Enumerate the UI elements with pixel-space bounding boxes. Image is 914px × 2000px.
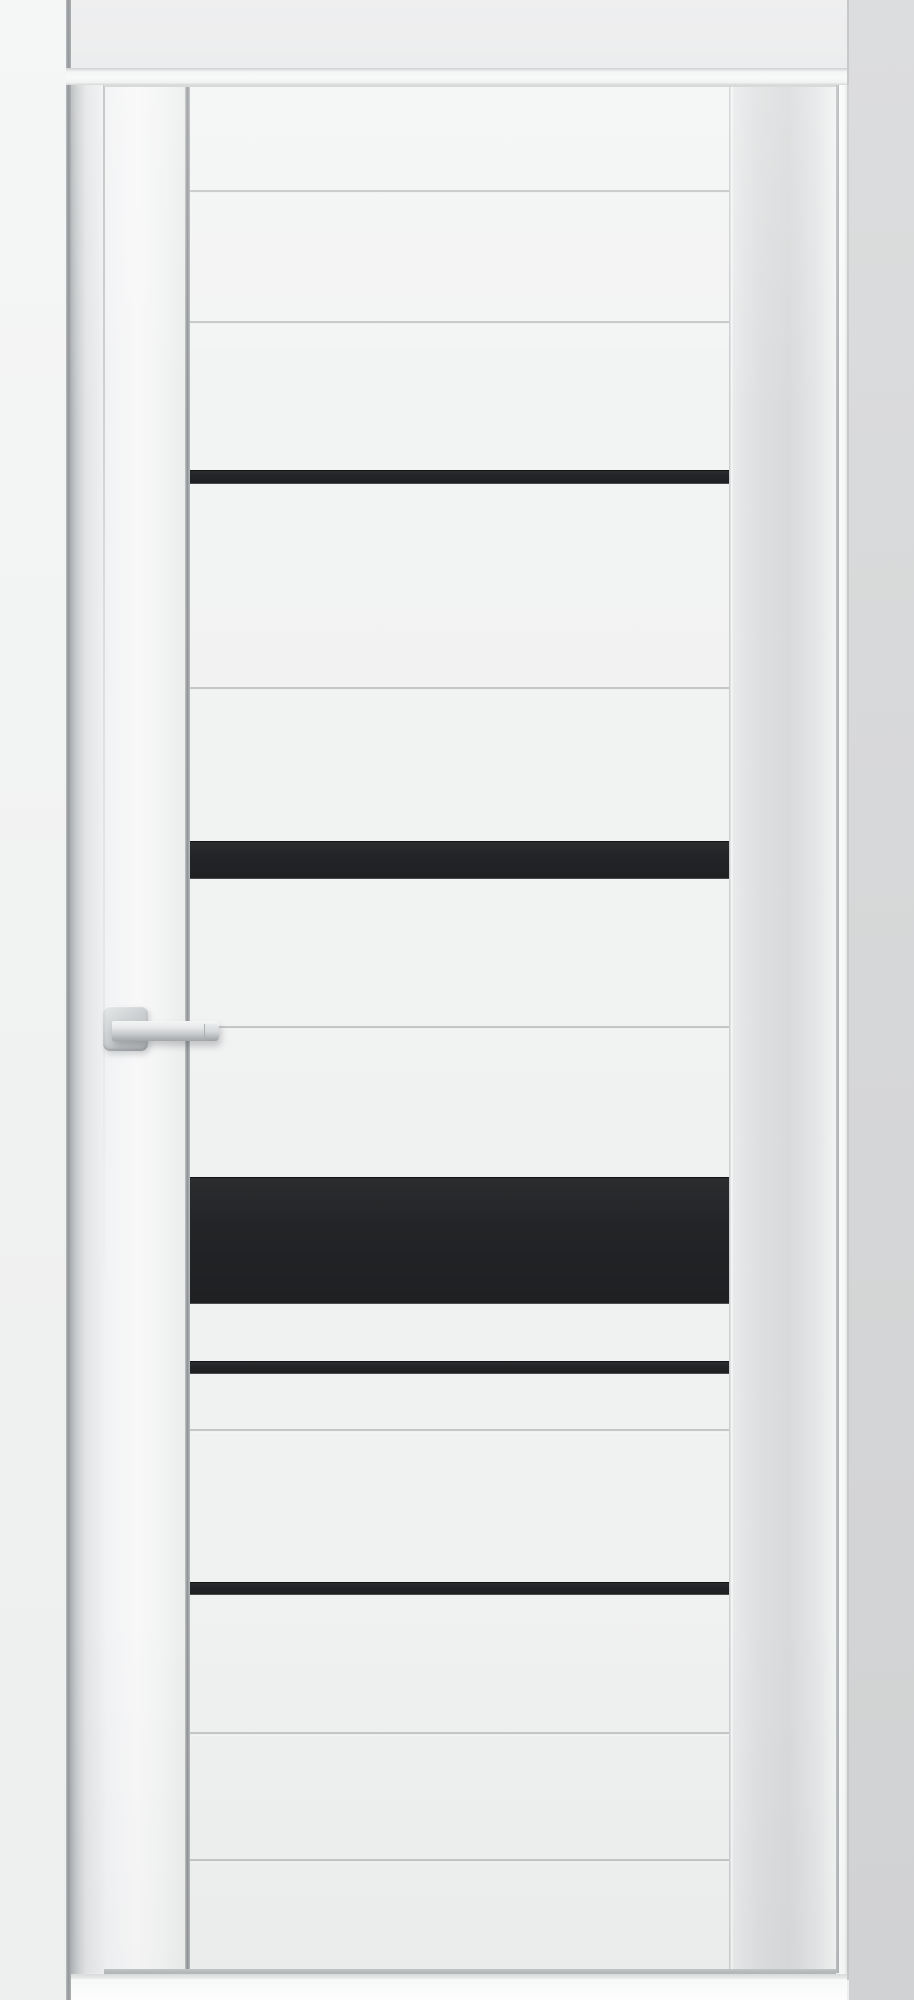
door-right-stile [733,85,836,1973]
door-frame-right-jamb [839,85,847,1977]
glass-stripe [190,1177,729,1304]
groove-line [190,190,729,194]
floor [71,1979,847,2000]
handle-lever-cap [204,1024,219,1041]
door-top-edge [104,85,836,87]
door-product-photo [0,0,914,2000]
groove-line [190,321,729,325]
wall-left [0,0,66,2000]
groove-line [190,687,729,691]
groove-line [190,1732,729,1736]
glass-stripe [190,470,729,484]
groove-line [190,1859,729,1863]
left-casing-inner-edge [103,85,105,1285]
glass-stripe [190,1361,729,1374]
door-frame-top-casing [66,68,847,85]
glass-stripe [190,841,729,879]
groove-line [190,1026,729,1030]
right-jamb-wall-edge [847,0,849,1980]
groove-line [190,1429,729,1433]
handle-lever [112,1021,219,1041]
wall-above-door [71,0,849,68]
glass-stripe [190,1582,729,1595]
wall-right [849,0,914,2000]
